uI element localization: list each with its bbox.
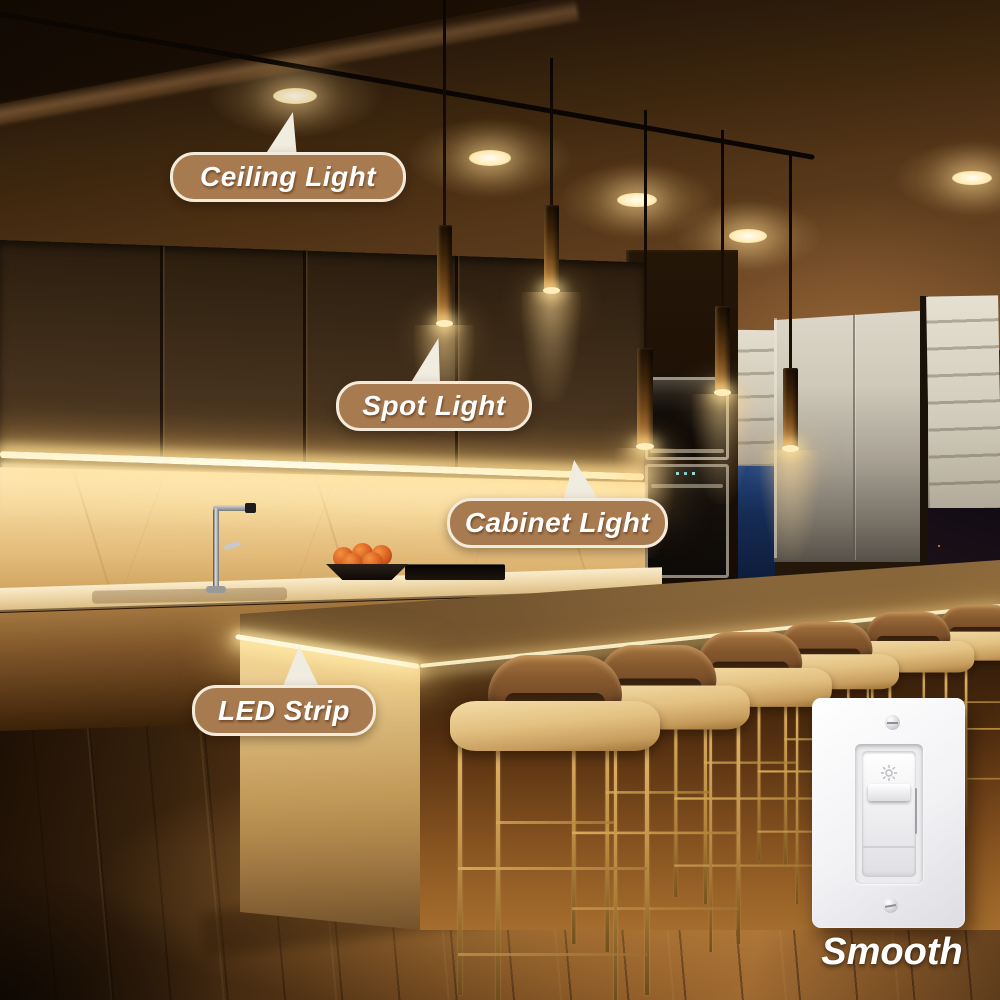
- kitchen-lighting-product-image: Ceiling Light Spot Light Cabinet Light L…: [0, 0, 1000, 1000]
- stool-leg: [709, 719, 712, 952]
- pendant-cord: [789, 154, 792, 368]
- brightness-icon: [880, 764, 898, 782]
- pendant-light: [637, 348, 653, 446]
- screw-icon: [883, 898, 898, 913]
- stool-brace: [458, 953, 647, 956]
- ceiling-downlight: [729, 229, 766, 243]
- stool-footrest: [458, 867, 647, 870]
- ceiling-downlight: [617, 193, 657, 207]
- screw-slot: [885, 904, 896, 908]
- dimmer-paddle-seam: [862, 846, 916, 848]
- dimmer-switch-plate: [812, 698, 965, 928]
- faucet-head: [245, 503, 256, 513]
- callout-label: LED Strip: [218, 695, 350, 727]
- callout-spot-light: Spot Light: [336, 381, 532, 431]
- pendant-cord: [443, 0, 446, 225]
- pendant-glow: [636, 443, 654, 450]
- pendant-glow: [436, 320, 453, 327]
- ceiling-downlight: [952, 171, 992, 185]
- callout-led-strip: LED Strip: [192, 685, 376, 736]
- pendant-light: [715, 306, 730, 392]
- pendant-glow: [543, 287, 560, 294]
- pendant-cord: [721, 130, 724, 306]
- callout-label: Ceiling Light: [200, 161, 376, 193]
- callout-label: Cabinet Light: [465, 507, 650, 539]
- screw-icon: [885, 715, 900, 730]
- callout-cabinet-light: Cabinet Light: [447, 498, 668, 548]
- bar-stool: [450, 655, 660, 995]
- city-lights: [938, 545, 940, 547]
- pendant-light: [544, 205, 559, 290]
- dimmer-slider-track: [915, 788, 917, 834]
- callout-label: Spot Light: [362, 390, 505, 422]
- stool-brace: [496, 821, 614, 824]
- ceiling-downlight: [273, 88, 317, 104]
- pendant-cord: [550, 58, 553, 205]
- cooktop: [405, 564, 505, 580]
- screw-slot: [887, 722, 898, 724]
- cabinet-seam: [303, 251, 306, 465]
- pendant-light: [437, 225, 452, 323]
- cabinet-seam: [160, 246, 163, 460]
- dimmer-slider-knob: [868, 784, 910, 801]
- ceiling-downlight: [469, 150, 511, 165]
- pendant-light: [783, 368, 798, 448]
- stool-leg: [796, 698, 799, 905]
- pendant-light-beam: [521, 292, 581, 402]
- pendant-glow: [782, 445, 799, 452]
- dimmer-caption: Smooth: [802, 928, 982, 976]
- stool-seat-cushion: [450, 701, 660, 751]
- window-shade-right: [926, 295, 1000, 514]
- pendant-light-beam: [760, 450, 820, 560]
- callout-ceiling-light: Ceiling Light: [170, 152, 406, 202]
- pantry-seam: [853, 314, 855, 560]
- pendant-cord: [644, 110, 647, 348]
- faucet: [213, 508, 219, 590]
- faucet-base: [206, 586, 226, 593]
- pendant-glow: [714, 389, 731, 396]
- pendant-light-beam: [692, 394, 752, 504]
- oven-display: [676, 472, 679, 475]
